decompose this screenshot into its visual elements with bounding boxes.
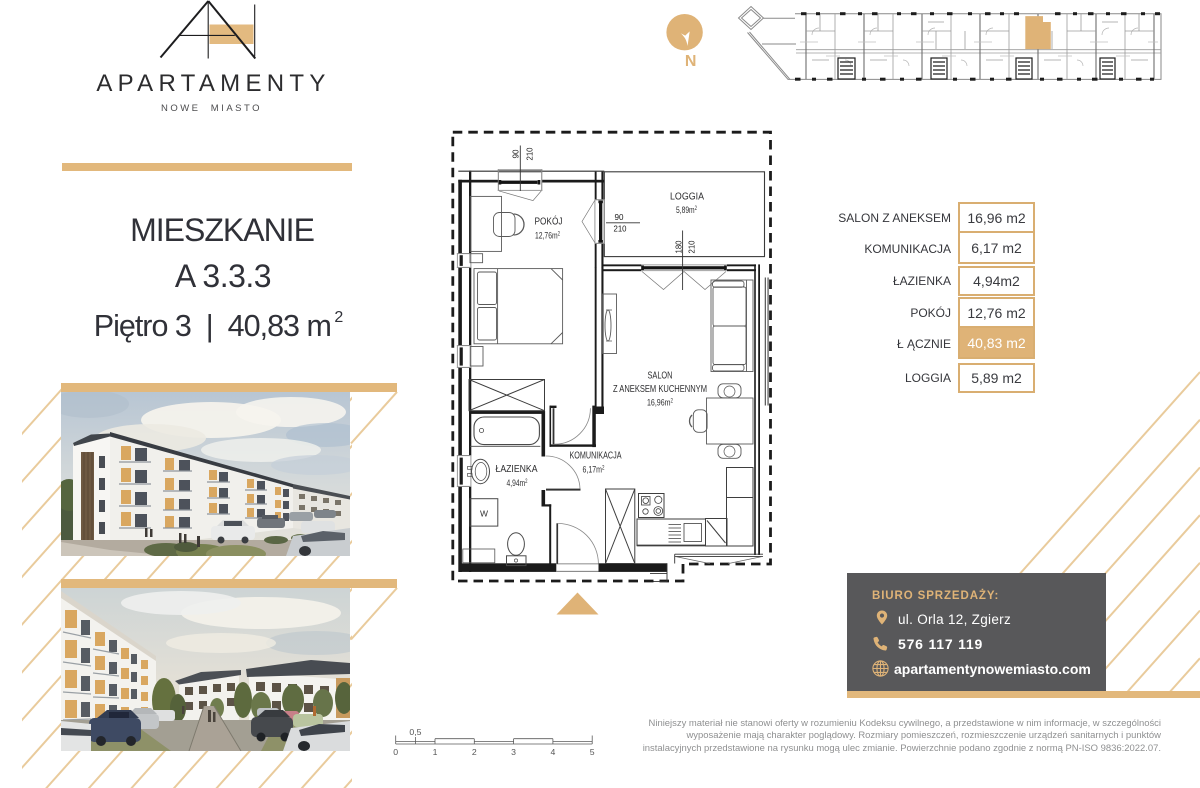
svg-text:90: 90 xyxy=(511,149,521,158)
svg-text:2: 2 xyxy=(472,747,477,757)
svg-text:3: 3 xyxy=(511,747,516,757)
svg-text:ŁAZIENKA: ŁAZIENKA xyxy=(496,463,538,475)
svg-text:210: 210 xyxy=(687,240,697,253)
svg-text:210: 210 xyxy=(525,147,535,160)
svg-text:KOMUNIKACJA: KOMUNIKACJA xyxy=(570,450,622,462)
svg-text:4,94m2: 4,94m2 xyxy=(507,478,528,489)
svg-text:POKÓJ: POKÓJ xyxy=(535,215,563,228)
svg-text:5: 5 xyxy=(590,747,595,757)
svg-text:210: 210 xyxy=(614,224,627,234)
svg-text:0,5: 0,5 xyxy=(409,727,421,737)
svg-text:12,76m2: 12,76m2 xyxy=(535,231,560,242)
svg-text:6,17m2: 6,17m2 xyxy=(583,465,605,476)
svg-text:LOGGIA: LOGGIA xyxy=(670,191,704,203)
svg-text:90: 90 xyxy=(615,212,624,222)
svg-text:1: 1 xyxy=(433,747,438,757)
svg-text:N: N xyxy=(685,53,697,70)
svg-text:0: 0 xyxy=(393,747,398,757)
svg-text:16,96m2: 16,96m2 xyxy=(647,398,673,409)
svg-text:SALON: SALON xyxy=(648,370,673,382)
svg-text:4: 4 xyxy=(550,747,555,757)
svg-text:180: 180 xyxy=(674,240,684,253)
svg-text:5,89m2: 5,89m2 xyxy=(676,205,697,216)
svg-text:W: W xyxy=(480,509,488,519)
svg-text:Z ANEKSEM KUCHENNYM: Z ANEKSEM KUCHENNYM xyxy=(613,383,707,395)
